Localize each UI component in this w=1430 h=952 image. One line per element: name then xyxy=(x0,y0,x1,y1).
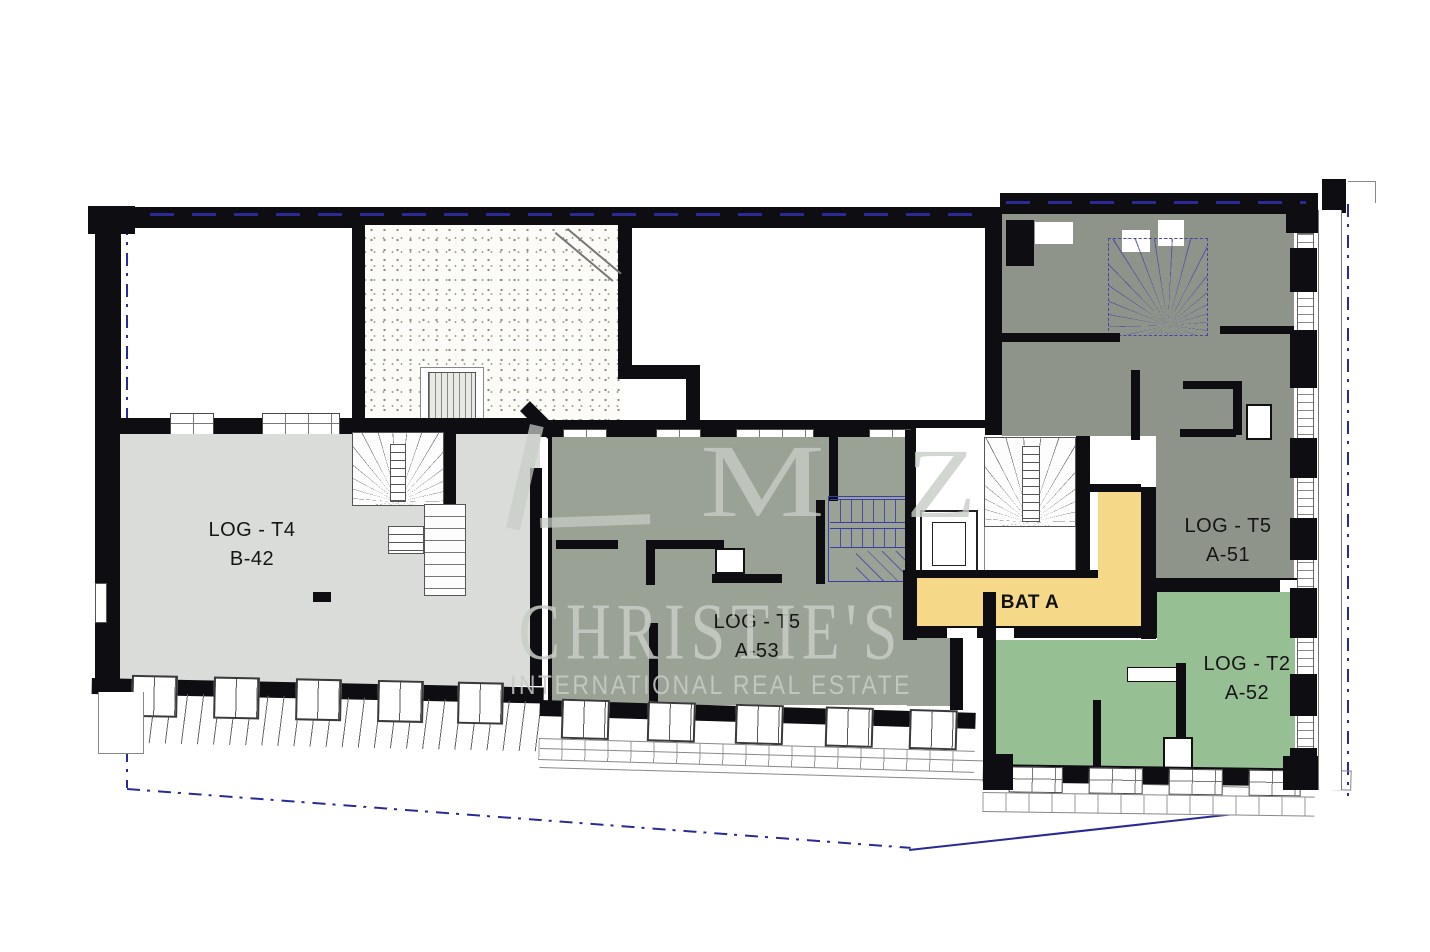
door-gap xyxy=(947,628,977,638)
window xyxy=(1169,769,1223,796)
dormer-window xyxy=(561,699,610,740)
dormer-window xyxy=(909,709,958,750)
internal-stair-a51 xyxy=(1108,238,1208,336)
boundary-line-bottom xyxy=(127,788,911,849)
window xyxy=(1089,767,1143,794)
stair-newel xyxy=(390,444,406,502)
wall-courtyard-right xyxy=(618,222,632,372)
floor-plan: LOG - T4 B-42 LOG - T5 A-53 xyxy=(0,0,1430,952)
unit-name: LOG - T5 xyxy=(1185,512,1272,541)
wall-partition xyxy=(1220,326,1294,334)
wall-partition xyxy=(829,437,838,501)
shelf xyxy=(1127,667,1177,682)
closet xyxy=(1246,404,1272,440)
dormer-window xyxy=(295,678,342,721)
unit-name: LOG - T4 xyxy=(209,516,296,545)
boundary-line-top xyxy=(150,213,995,216)
window xyxy=(262,413,340,435)
unit-a53-label: LOG - T5 A-53 xyxy=(714,608,801,666)
elevator-cab xyxy=(932,522,966,566)
internal-stair-a53 xyxy=(828,496,914,582)
wall-partition xyxy=(1183,381,1239,389)
unit-a53-area-ext xyxy=(907,638,952,706)
wall-partition xyxy=(1093,700,1101,772)
wall-partition xyxy=(1176,663,1186,743)
straight-stair-b42 xyxy=(424,504,466,596)
unit-code: A-53 xyxy=(714,637,801,666)
window-notch xyxy=(1035,222,1073,244)
wall-a53-right-low xyxy=(950,636,963,710)
wall-partition xyxy=(1233,381,1242,435)
wall-core-right xyxy=(1076,430,1090,592)
wall-niche xyxy=(95,583,107,623)
elevator xyxy=(920,510,978,578)
wall-partition xyxy=(1002,333,1120,342)
unit-name: LOG - T5 xyxy=(714,608,801,637)
unit-name: LOG - T2 xyxy=(1204,650,1291,679)
unit-a52-label: LOG - T2 A-52 xyxy=(1204,650,1291,708)
window-pier xyxy=(1290,748,1317,788)
furniture-mark xyxy=(313,592,331,602)
window-pier xyxy=(1290,518,1317,560)
unit-b42-label: LOG - T4 B-42 xyxy=(209,516,296,574)
wall-a52-left xyxy=(983,592,996,772)
window-pier xyxy=(1290,674,1317,716)
stair-treads xyxy=(830,499,912,523)
b42-south-facade xyxy=(90,674,544,775)
wall-stair-right xyxy=(444,418,456,504)
unit-a51-label: LOG - T5 A-51 xyxy=(1185,512,1272,570)
dormer-window xyxy=(735,704,784,745)
wall-partition xyxy=(649,623,658,711)
wall-partition xyxy=(712,574,782,583)
wall-room-divider xyxy=(352,222,365,425)
wall-arm-cap xyxy=(1090,484,1141,492)
balustrade xyxy=(982,792,1314,817)
terrace-corner xyxy=(98,692,144,754)
wall-partition xyxy=(646,540,724,549)
ladder xyxy=(388,526,424,554)
wall-b42-left xyxy=(95,434,120,688)
window-pier xyxy=(1290,248,1317,292)
duct-box xyxy=(715,548,745,574)
boundary-line-right xyxy=(1347,204,1349,796)
wall-partition xyxy=(646,549,655,585)
unit-a52-area-low xyxy=(996,640,1157,774)
wall-corner xyxy=(983,754,1013,790)
unit-code: A-51 xyxy=(1185,541,1272,570)
unit-code: B-42 xyxy=(209,545,296,574)
wall-top-stub-right xyxy=(1322,179,1346,213)
floor-grille xyxy=(428,372,476,420)
wall-corner xyxy=(1286,205,1318,233)
wall-partition xyxy=(1131,370,1140,440)
corridor-bat-a-arm xyxy=(1098,490,1141,582)
wall-rb-left xyxy=(985,207,1002,435)
dormer-window xyxy=(213,677,260,720)
window-pier xyxy=(1290,588,1317,638)
balcony-strip xyxy=(1318,210,1342,790)
window xyxy=(1009,766,1063,793)
dormer-window xyxy=(647,701,696,742)
stair-treads xyxy=(830,528,912,548)
a52-south-facade xyxy=(982,764,1315,825)
dormer-window xyxy=(457,682,504,725)
wall-top-right xyxy=(1000,193,1318,216)
window-pier xyxy=(1290,438,1317,478)
duct-block xyxy=(1006,220,1034,266)
dormer-window xyxy=(377,680,424,723)
core-label: BAT A xyxy=(1001,592,1059,614)
window-pier xyxy=(1290,330,1317,388)
wall-partition xyxy=(816,500,825,584)
wall-core-bottom-left xyxy=(903,570,917,640)
wall-b42-right-low xyxy=(530,468,542,686)
wall-courtyard-step-v xyxy=(686,365,700,425)
window xyxy=(170,413,214,435)
unit-code: A-52 xyxy=(1204,679,1291,708)
survey-mark xyxy=(1348,181,1376,203)
unit-b42-area xyxy=(120,434,540,686)
wall-partition xyxy=(556,540,618,549)
dormer-window xyxy=(825,706,874,747)
wall-partition xyxy=(1180,429,1236,437)
stair-newel xyxy=(1022,446,1040,522)
boundary-line-top-right xyxy=(1006,201,1306,204)
wall-left-upper xyxy=(95,207,121,437)
